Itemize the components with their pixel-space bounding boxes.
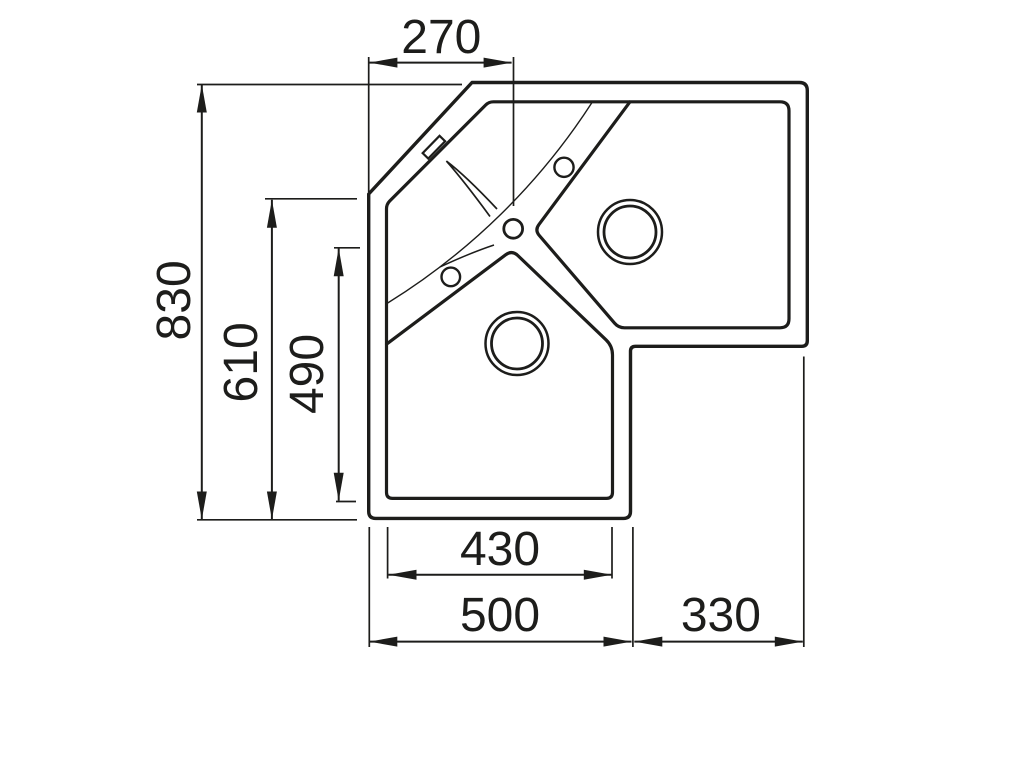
svg-text:330: 330: [681, 589, 761, 642]
svg-text:610: 610: [215, 322, 268, 402]
svg-text:490: 490: [281, 334, 334, 414]
svg-text:830: 830: [148, 260, 201, 340]
svg-text:270: 270: [401, 11, 481, 64]
svg-text:430: 430: [460, 523, 540, 576]
svg-text:500: 500: [460, 589, 540, 642]
